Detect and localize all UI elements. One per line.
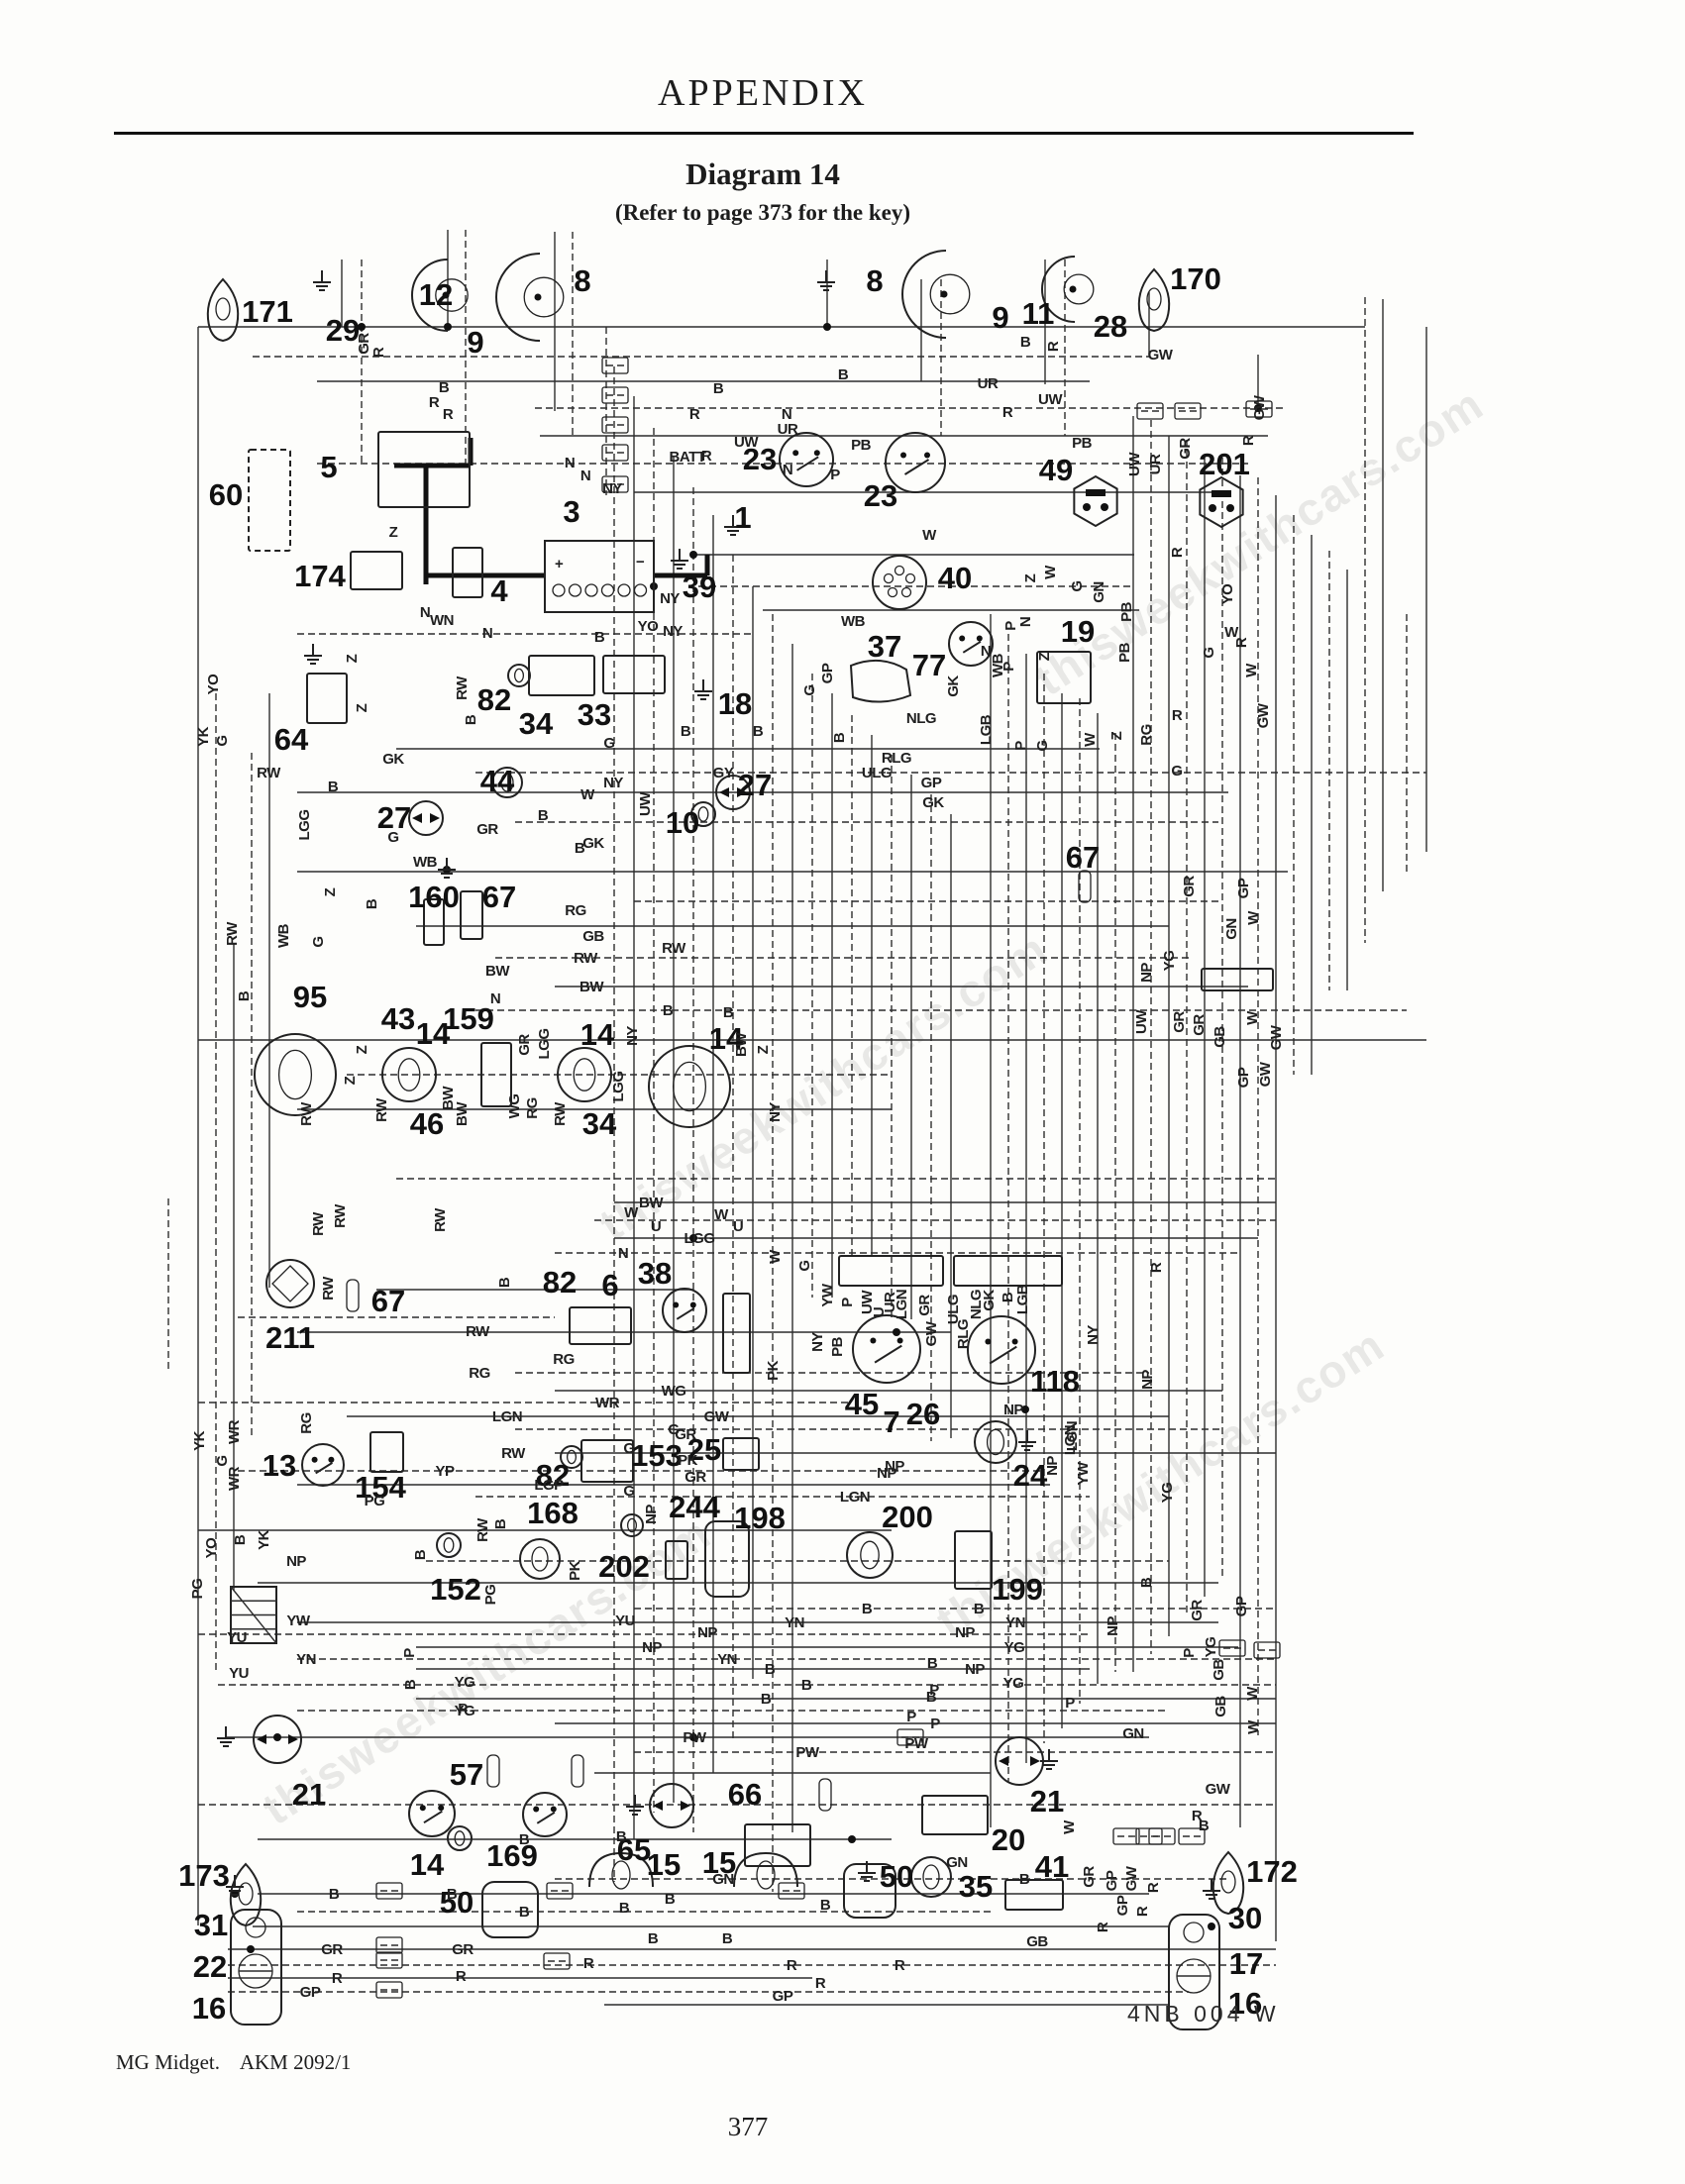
component-number: 44 (480, 764, 515, 798)
wire-label: NY (1085, 1325, 1102, 1345)
wire-label: N (782, 406, 791, 423)
wire-label: P (1065, 1695, 1075, 1712)
wire-label: B (232, 1534, 249, 1545)
lamp-icon (448, 1826, 472, 1850)
wire-label: GK (945, 676, 962, 697)
wire-label: LGG (610, 1072, 627, 1102)
wire-label: W (1245, 910, 1262, 925)
wire-label: LGN (492, 1408, 522, 1425)
wire-label: LGN (894, 1290, 910, 1319)
component-number: 60 (209, 477, 243, 512)
wire-label: GR (675, 1426, 696, 1443)
wire-label: W (1244, 1010, 1261, 1025)
wire-label: NY (767, 1102, 784, 1122)
switch-icon (302, 1444, 344, 1486)
component-number: 7 (883, 1404, 899, 1439)
wire-label: GW (1148, 347, 1174, 364)
battery-cell (570, 584, 581, 596)
component-number: 1 (734, 500, 751, 535)
wire-label: YN (1005, 1614, 1025, 1631)
wire-label: GB (1211, 1026, 1228, 1048)
connector-icon (1219, 1640, 1245, 1656)
component-box (351, 552, 402, 589)
wire-label: R (1148, 1262, 1165, 1273)
flasher-unit-icon (1074, 476, 1116, 526)
wire-label: GR (1171, 1011, 1188, 1033)
wire-label: BW (639, 1195, 664, 1211)
component-number: 5 (320, 450, 337, 484)
wire-label: Z (389, 524, 398, 541)
wire-label: B (801, 1677, 812, 1694)
wire-label: RW (454, 676, 471, 700)
wire-label: PB (1072, 435, 1093, 452)
component-number: 82 (477, 682, 511, 717)
wire-label: YG (1203, 1637, 1219, 1658)
wire-label: YW (819, 1283, 836, 1307)
wire-label: G (214, 1455, 231, 1466)
footer-reference: MG Midget. AKM 2092/1 (116, 2050, 351, 2075)
arrow-right (430, 813, 440, 823)
component-number: 19 (1061, 614, 1095, 649)
wire-label: W (1061, 1820, 1078, 1834)
headlamp-icon (496, 254, 540, 341)
wire-label: BW (454, 1101, 471, 1126)
component-number: 67 (482, 880, 516, 914)
page-title: APPENDIX (0, 71, 1526, 115)
wire-label: WR (226, 1419, 243, 1444)
component-number: 173 (178, 1858, 230, 1893)
switch-pin (985, 1339, 991, 1345)
wire-label: W (922, 527, 937, 544)
junction-dot (247, 1945, 255, 1953)
sidelamp-bulb (216, 298, 230, 320)
switch-pin (420, 1805, 426, 1811)
wire-label: BATT (670, 449, 706, 466)
battery-plus: + (555, 556, 564, 572)
wire-label: B (663, 1002, 674, 1019)
wire-label: W (580, 786, 595, 803)
wire-label: N (482, 625, 492, 642)
wire-label: LGB (978, 714, 995, 745)
junction-dot (689, 551, 697, 559)
wire-label: GR (516, 1034, 533, 1056)
wire-label: YN (785, 1614, 804, 1631)
wire-label: YU (615, 1612, 635, 1629)
beam-unit-icon (266, 1260, 314, 1307)
wire-label: YO (203, 1537, 220, 1559)
number-plate-lamp (734, 1853, 797, 1887)
wire-label: R (815, 1975, 826, 1992)
wire-label: NP (1139, 1370, 1156, 1390)
component-box (745, 1824, 810, 1866)
wire-label: GW (1206, 1781, 1231, 1798)
wire-label: NP (965, 1661, 985, 1678)
arrow-right (681, 1801, 690, 1811)
wire-label: PB (829, 1336, 846, 1357)
switch-pin (328, 1457, 334, 1463)
wire-label: GP (1114, 1895, 1131, 1916)
wire-label: NP (877, 1465, 896, 1482)
wire-label: RG (469, 1365, 490, 1382)
wire-label: B (439, 379, 450, 396)
wire-label: GN (712, 1871, 734, 1888)
wire-label: WB (413, 854, 438, 871)
lamp-icon (649, 1046, 730, 1127)
wire-label: Z (342, 1076, 359, 1085)
header-divider (114, 132, 1414, 135)
wire-label: GB (1211, 1659, 1227, 1681)
junction-dot (848, 1835, 856, 1843)
component-number: 3 (563, 494, 579, 529)
wire-label: GW (1268, 1024, 1285, 1050)
component-number: 169 (486, 1838, 538, 1873)
wire-label: R (370, 347, 387, 358)
wire-label: P (830, 467, 840, 483)
fuse-icon (819, 1779, 831, 1811)
component-number: 211 (265, 1320, 315, 1355)
wire-label: U (651, 1218, 661, 1235)
flasher-bar (1086, 489, 1106, 496)
wire-label: RW (224, 921, 241, 946)
wire-label: RW (574, 950, 598, 967)
wire-label: GP (819, 663, 836, 683)
wire-label: WR (595, 1395, 620, 1411)
wire-label: N (490, 990, 500, 1007)
wire-label: U (733, 1218, 743, 1235)
wire-label: B (364, 898, 380, 909)
wire-label: N (420, 604, 430, 621)
component-number: 9 (467, 325, 483, 360)
component-number: 27 (738, 768, 772, 802)
wire-label: RG (1138, 724, 1155, 746)
wire-label: GW (1123, 1865, 1140, 1891)
distributor-terminal (895, 567, 904, 575)
wire-label: R (332, 1970, 343, 1987)
wire-label: NY (603, 775, 623, 791)
component-number: 10 (666, 805, 699, 840)
wire-label: R (1045, 341, 1062, 352)
wire-label: YN (717, 1651, 737, 1668)
component-number: 202 (598, 1549, 650, 1584)
wire-label: G (1201, 647, 1217, 658)
component-number: 9 (992, 300, 1008, 335)
page-number: 377 (0, 2112, 1496, 2142)
wire-label: Z (1036, 652, 1053, 661)
component-number: 14 (580, 1017, 615, 1052)
fuse-icon (572, 1755, 583, 1787)
wire-label: W (624, 1204, 639, 1221)
wire-label: NP (1003, 1402, 1023, 1418)
wire-label: Z (755, 1045, 772, 1054)
wire-label: P (929, 1682, 939, 1699)
component-number: 28 (1094, 309, 1127, 344)
component-number: 14 (410, 1847, 445, 1882)
headlamp-icon (902, 251, 946, 338)
switch-lever (875, 1346, 901, 1363)
wire-label: R (1169, 547, 1186, 558)
lamp-icon (437, 1533, 461, 1557)
wire-label: RW (432, 1207, 449, 1232)
wire-label: UW (1038, 391, 1063, 408)
wire-label: Z (1022, 573, 1039, 582)
wire-label: R (895, 1957, 905, 1974)
wire-label: G (623, 1440, 634, 1457)
wire-label: B (1020, 334, 1031, 351)
wire-label: P (1012, 741, 1029, 751)
component-box (249, 450, 290, 551)
wire-label: LGB (1014, 1284, 1031, 1314)
junction-dot (893, 1328, 900, 1336)
fuse-icon (487, 1755, 499, 1787)
component-number: 174 (294, 559, 346, 593)
battery-icon (545, 541, 654, 612)
wire-label: W (1245, 1719, 1262, 1734)
switch-pin (312, 1457, 318, 1463)
component-number: 40 (938, 561, 972, 595)
lamp-icon (911, 1857, 951, 1897)
wire-label: GN (946, 1854, 968, 1871)
wire-label: RG (565, 902, 586, 919)
arrow-right (1030, 1756, 1040, 1766)
wire-label: PW (904, 1735, 929, 1752)
wire-label: PW (795, 1744, 820, 1761)
lamp-bulb (698, 807, 708, 821)
component-number: 95 (293, 980, 327, 1014)
wire-label: R (443, 406, 454, 423)
diagram-title: Diagram 14 (0, 156, 1526, 192)
component-number: 198 (734, 1501, 786, 1535)
battery-cell (602, 584, 614, 596)
wire-label: N (1017, 617, 1034, 627)
switch-pin (924, 453, 930, 459)
wire-label: R (583, 1955, 594, 1972)
fuse-icon (347, 1280, 359, 1311)
wire-label: R (1240, 435, 1257, 446)
connector-icon (779, 1883, 804, 1899)
lamp-icon (847, 1532, 893, 1578)
wire-label: Z (322, 887, 339, 896)
wire-label: B (665, 1891, 676, 1908)
component-number: 170 (1170, 261, 1221, 296)
wire-label: RW (320, 1276, 337, 1300)
wire-label: PG (365, 1493, 385, 1509)
wire-label: WB (841, 613, 866, 630)
component-number: 67 (1066, 840, 1100, 875)
wire-label: GW (1255, 702, 1272, 728)
connector-icon (376, 1883, 402, 1899)
wire-label: NY (663, 623, 683, 640)
wire-label: R (1233, 637, 1250, 648)
wire-label: GR (1181, 876, 1198, 897)
wire-label: BW (733, 1032, 750, 1057)
wire-label: B (619, 1900, 630, 1917)
wire-label: NP (643, 1505, 660, 1524)
wire-label: RW (310, 1211, 327, 1236)
wire-label: BW (579, 979, 604, 995)
wire-label: W (1244, 1686, 1261, 1701)
wire-label: G (387, 829, 398, 846)
distributor-icon (873, 556, 926, 609)
wire-label: GR (916, 1295, 933, 1316)
lamp-icon (520, 1539, 560, 1579)
component-number: 201 (1199, 447, 1250, 481)
wire-label: GN (1223, 918, 1240, 940)
distributor-terminal (906, 574, 915, 583)
flasher-pin (1101, 503, 1108, 511)
wire-label: P (839, 1298, 856, 1307)
wire-label: RW (257, 765, 281, 781)
component-number: 8 (574, 263, 590, 298)
distributor-terminal (885, 574, 894, 583)
connector-icon (376, 1982, 402, 1998)
wire-label: GR (685, 1469, 706, 1486)
lamp-bulb (444, 1538, 454, 1552)
sidelamp-icon (208, 279, 238, 341)
fuse-icon (1079, 871, 1091, 902)
lamp-bulb (455, 1831, 465, 1845)
wire-label: PK (678, 1452, 698, 1469)
switch-icon (663, 1289, 706, 1332)
wire-label: NP (697, 1624, 717, 1641)
wire-label: YO (205, 674, 222, 695)
wire-label: G (1171, 763, 1182, 780)
wire-label: B (648, 1930, 659, 1947)
wire-label: PK (567, 1560, 583, 1581)
wire-label: PB (851, 437, 872, 454)
component-box (922, 1796, 988, 1834)
wire-label: YO (638, 618, 660, 635)
wiring-diagram-canvas: thisweekwithcars.comthisweekwithcars.com… (0, 0, 1685, 2179)
headlamp-bulb (524, 277, 564, 317)
wire-label: YK (195, 726, 212, 747)
sidelamp-bulb (1221, 1871, 1235, 1893)
arrow-right (288, 1734, 298, 1744)
battery-minus: − (636, 554, 645, 571)
battery-cell (618, 584, 630, 596)
component-number: 168 (527, 1496, 579, 1530)
wire-label: NP (286, 1553, 306, 1570)
component-number: 159 (443, 1001, 494, 1036)
flasher-bar (1211, 490, 1231, 497)
wire-label: B (820, 1897, 831, 1914)
wire-label: GW (1257, 1061, 1274, 1087)
wire-label: GR (1081, 1866, 1098, 1888)
switch-pin (897, 1338, 903, 1344)
component-number: 12 (419, 277, 453, 312)
wire-label: P (930, 1716, 940, 1732)
wire-label: B (402, 1679, 419, 1690)
wire-label: YN (296, 1651, 316, 1668)
switch-pin (533, 1807, 539, 1813)
wire-label: NLG (906, 710, 936, 727)
wire-label: GB (1026, 1933, 1048, 1950)
wire-label: WB (990, 653, 1006, 677)
wire-label: YU (227, 1629, 247, 1646)
component-box (482, 1882, 538, 1937)
lamp-bulb (988, 1429, 1004, 1454)
wire-label: R (1095, 1922, 1111, 1932)
wire-label: W (1243, 663, 1260, 677)
lamp-icon (508, 665, 530, 686)
component-box (570, 1307, 631, 1344)
wire-label: GP (1235, 1067, 1252, 1088)
wire-label: BW (485, 963, 510, 980)
switch-lever (677, 1308, 694, 1319)
wire-label: LGP (534, 1477, 564, 1494)
wire-label: R (689, 406, 700, 423)
connector-icon (1113, 1828, 1139, 1844)
wire-label: N (580, 468, 590, 484)
component-number: 49 (1039, 453, 1073, 487)
component-number: 82 (543, 1265, 577, 1300)
wire-label: GR (321, 1941, 343, 1958)
wire-label: B (681, 723, 691, 740)
wire-label: B (519, 1831, 530, 1848)
wire-label: NY (602, 480, 622, 497)
wire-label: GP (300, 1984, 321, 2001)
wire-label: B (753, 723, 764, 740)
diagram-subtitle: (Refer to page 373 for the key) (0, 200, 1526, 226)
wire-label: RG (298, 1412, 315, 1434)
component-number: 24 (1013, 1458, 1048, 1493)
watermark: thisweekwithcars.com (1026, 377, 1493, 705)
flasher-pin (1209, 504, 1216, 512)
wire-label: R (1172, 707, 1183, 724)
battery-cell (635, 584, 647, 596)
wire-label: B (761, 1691, 772, 1708)
component-number: 20 (992, 1822, 1025, 1857)
wire-label: YK (191, 1430, 208, 1451)
wire-label: LGG (296, 810, 313, 841)
lamp-bulb (279, 1050, 312, 1098)
wire-label: B (713, 380, 724, 397)
wire-label: GB (1212, 1696, 1229, 1717)
component-number: 64 (274, 722, 309, 757)
connector-icon (1175, 403, 1201, 419)
wire-label: B (927, 1655, 938, 1672)
wire-label: GK (922, 794, 944, 811)
wire-label: RW (332, 1203, 349, 1228)
junction-dot (273, 1733, 281, 1741)
wire-label: RLG (955, 1319, 972, 1349)
wire-label: B (329, 1886, 340, 1903)
arrow-left (999, 1756, 1008, 1766)
wire-label: YK (256, 1529, 272, 1550)
headlamp-pin (941, 291, 948, 298)
switch-pin (977, 636, 983, 642)
wire-label: NP (1138, 963, 1155, 983)
beam-diamond (272, 1266, 308, 1301)
wire-label: GP (921, 775, 942, 791)
component-number: 152 (430, 1572, 481, 1607)
switch-lever (990, 1347, 1016, 1364)
wire-label: NP (642, 1639, 662, 1656)
component-number: 199 (992, 1572, 1043, 1607)
switch-pin (690, 1302, 696, 1308)
wire-label: YG (1003, 1675, 1024, 1692)
wire-label: NY (624, 1026, 641, 1046)
component-number: 160 (408, 880, 460, 914)
wire-label: YG (1161, 951, 1178, 972)
wire-label: NP (1105, 1616, 1121, 1636)
component-box (1005, 1880, 1063, 1910)
wire-label: RW (474, 1517, 491, 1542)
lamp-bulb (532, 1547, 548, 1571)
wire-label: LGN (840, 1489, 870, 1506)
component-number: 26 (906, 1397, 940, 1431)
wire-label: YG (455, 1674, 475, 1691)
battery-cell (553, 584, 565, 596)
